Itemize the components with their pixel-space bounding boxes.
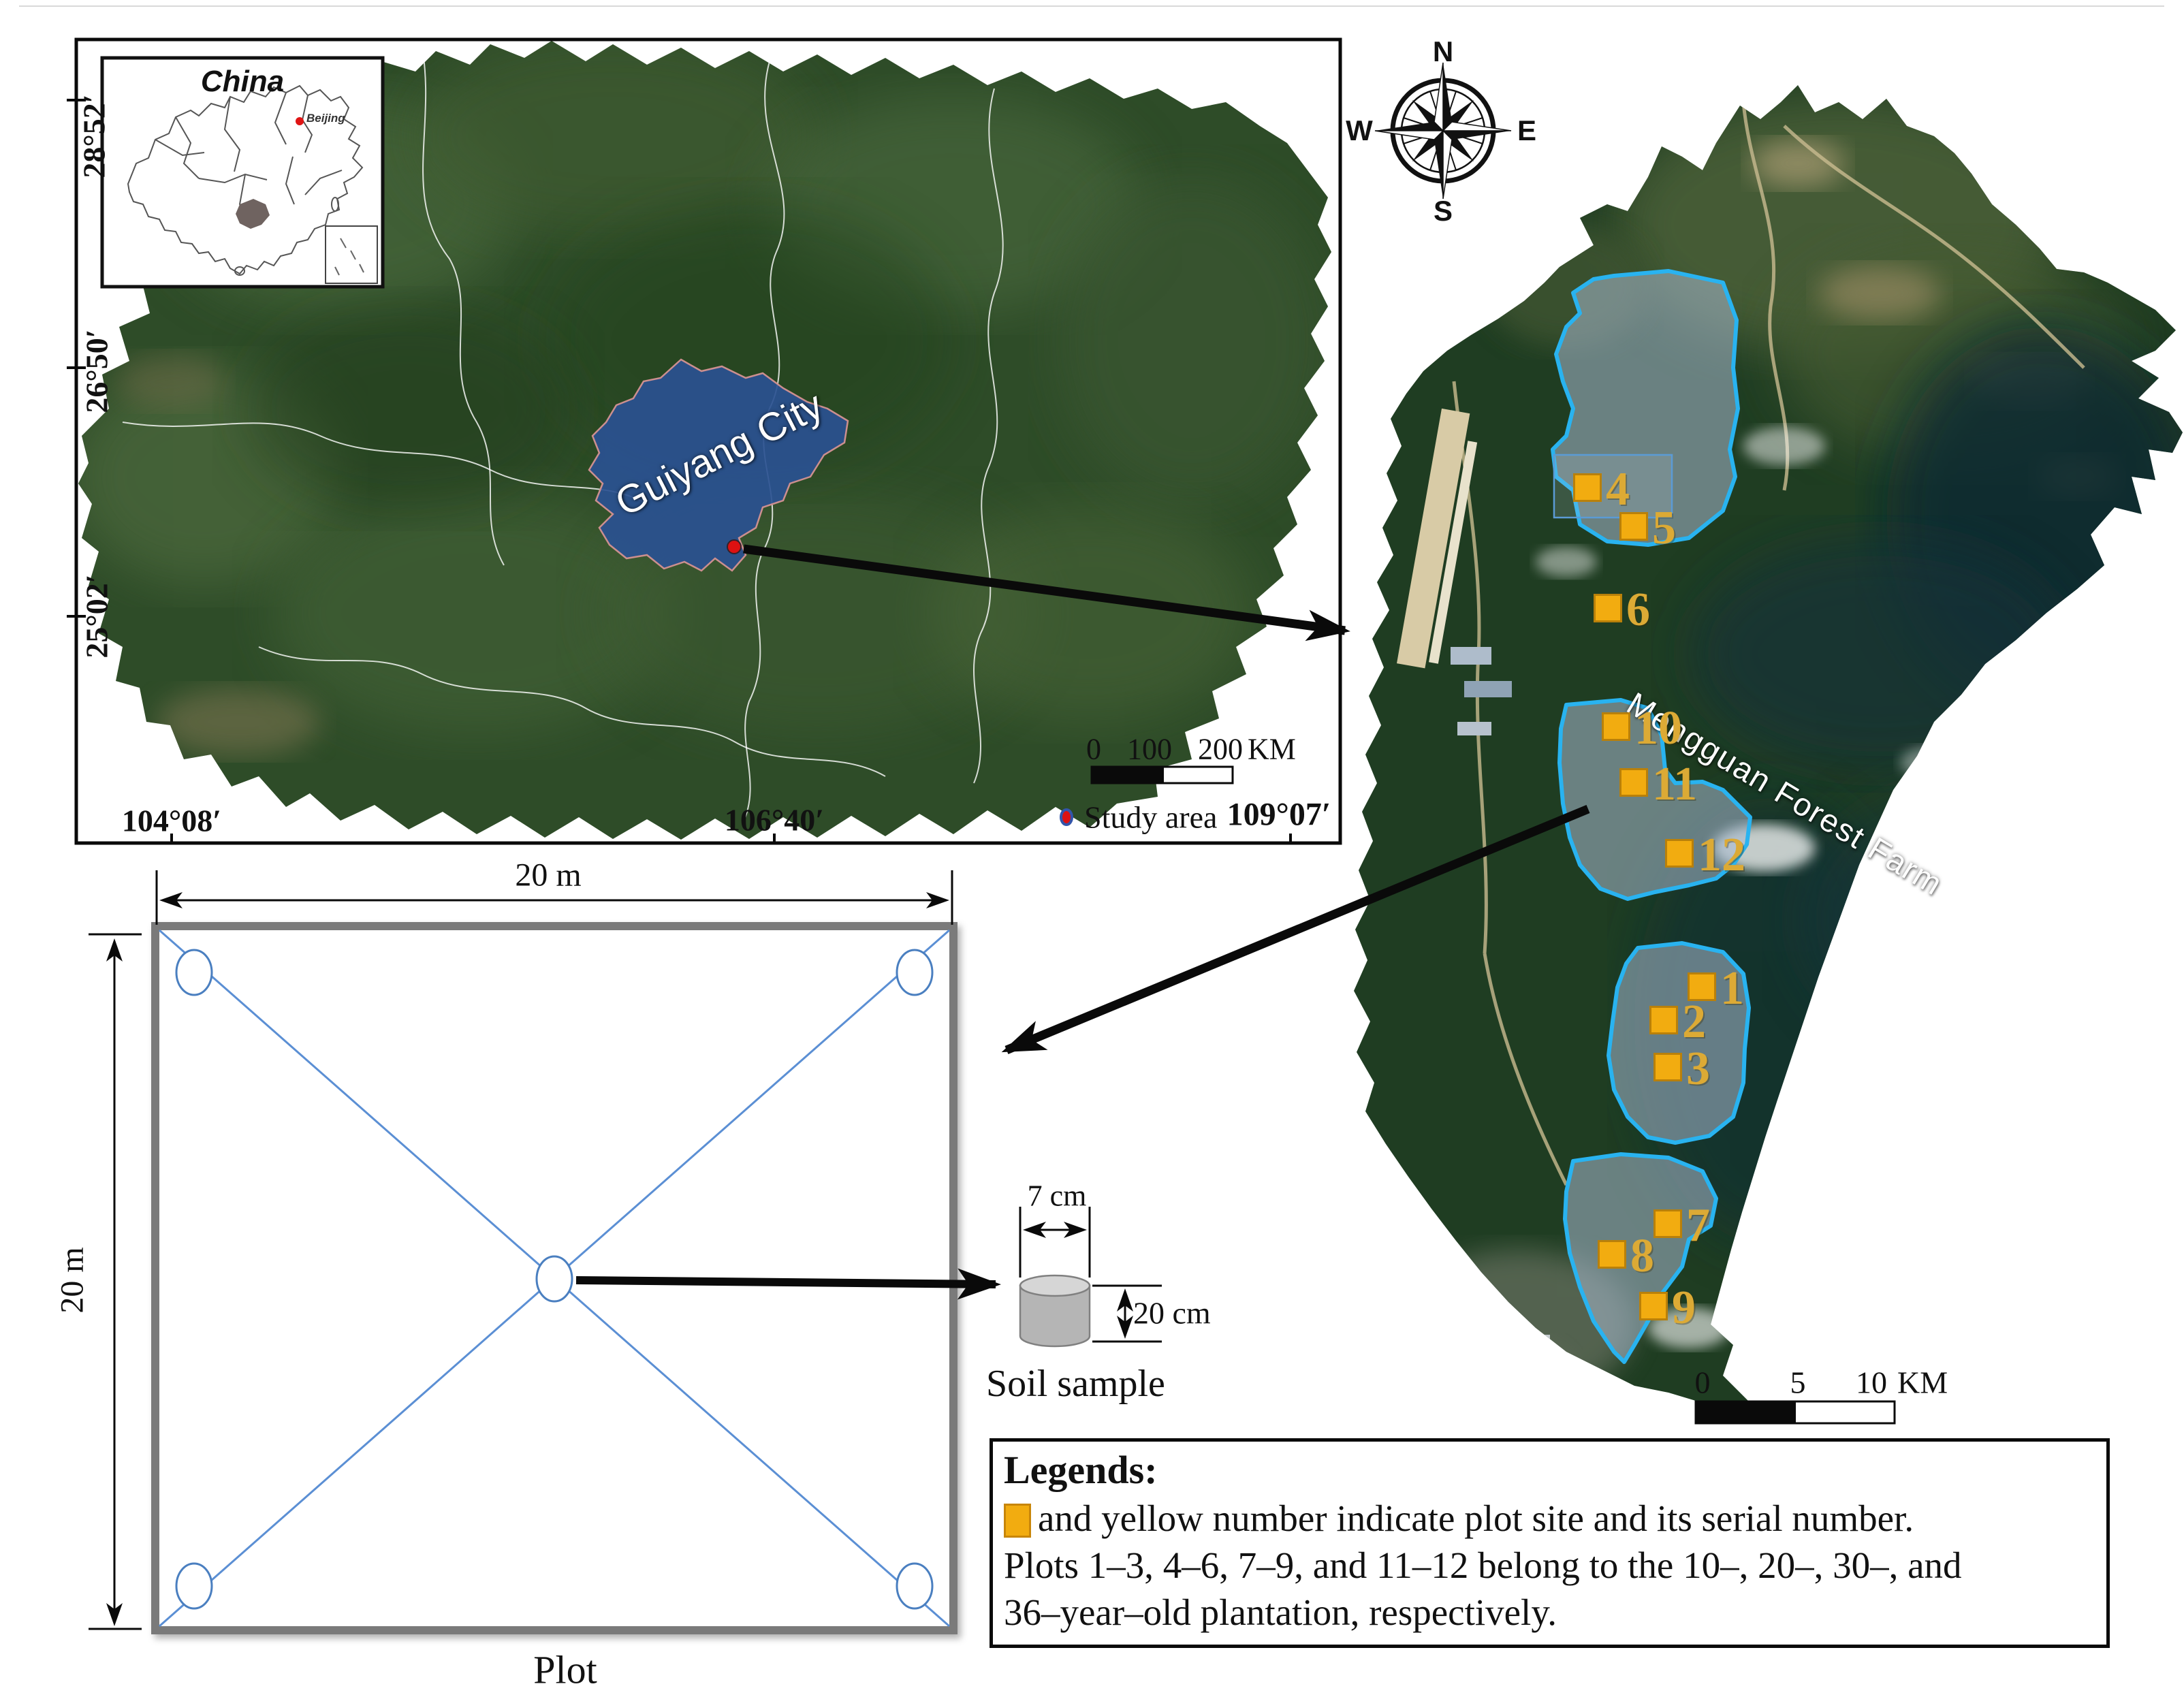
main-scale-unit: KM <box>1248 732 1296 767</box>
plot-square-icon <box>1619 768 1648 797</box>
plot-marker-9: 9 <box>1639 1292 1696 1325</box>
study-area-dot <box>727 540 741 554</box>
soil-depth-label: 20 cm <box>1133 1295 1211 1331</box>
main-scale-0: 0 <box>1086 732 1101 767</box>
arrow-plot-to-soil <box>576 1280 996 1284</box>
lon-label-106: 106°40′ <box>725 802 824 838</box>
compass-s-label: S <box>1434 195 1453 227</box>
legends-line-1-text: and yellow number indicate plot site and… <box>1038 1497 1914 1539</box>
main-scale-100: 100 <box>1127 732 1172 767</box>
plot-square-icon <box>1573 473 1602 502</box>
inset-title: China <box>201 65 284 99</box>
plot-number: 9 <box>1672 1292 1696 1325</box>
plot-marker-6: 6 <box>1594 594 1650 627</box>
legends-line-2: Plots 1–3, 4–6, 7–9, and 11–12 belong to… <box>1004 1542 2095 1589</box>
compass-w-label: W <box>1346 114 1373 147</box>
compass-n-label: N <box>1433 35 1453 68</box>
lat-label-26: 26°50′ <box>79 329 115 413</box>
main-scale-200: 200 <box>1198 732 1243 767</box>
plot-number: 11 <box>1652 768 1697 801</box>
legends-box: Legends: and yellow number indicate plot… <box>990 1438 2110 1648</box>
right-scale-5: 5 <box>1790 1365 1806 1401</box>
plot-number: 4 <box>1606 473 1630 506</box>
plot-marker-4: 4 <box>1573 473 1630 506</box>
plot-square-icon <box>1665 839 1694 868</box>
study-area-label: Study area <box>1084 799 1217 836</box>
plot-diagram <box>89 870 953 1630</box>
plot-square-legend-icon <box>1004 1504 1031 1538</box>
height-dimension <box>89 934 142 1629</box>
plot-square-icon <box>1653 1053 1682 1081</box>
soil-diameter-label: 7 cm <box>1028 1179 1087 1214</box>
plot-square-icon <box>1594 594 1622 622</box>
legends-line-3: 36–year–old plantation, respectively. <box>1004 1589 2095 1636</box>
plot-number: 12 <box>1698 839 1745 872</box>
plot-marker-7: 7 <box>1653 1209 1710 1242</box>
plot-marker-12: 12 <box>1665 839 1745 872</box>
lat-label-28: 28°52′ <box>76 94 112 178</box>
plot-square-icon <box>1653 1209 1682 1238</box>
plot-square-icon <box>1639 1292 1668 1320</box>
soil-cylinder <box>1020 1275 1090 1346</box>
plot-marker-3: 3 <box>1653 1053 1710 1085</box>
compass-e-label: E <box>1517 114 1536 147</box>
study-area-legend-dot <box>1061 810 1072 825</box>
soil-diameter-dimension <box>1020 1207 1090 1278</box>
plot-square-icon <box>1598 1240 1626 1269</box>
plot-number: 7 <box>1686 1209 1710 1242</box>
plot-width-label: 20 m <box>515 857 581 894</box>
figure: 28°52′ 26°50′ 25°02′ 104°08′ 106°40′ 109… <box>0 0 2184 1697</box>
legends-title: Legends: <box>1004 1446 2095 1495</box>
compass-rose-icon <box>1375 63 1511 199</box>
plot-marker-2: 2 <box>1649 1006 1706 1038</box>
plot-square-icon <box>1602 712 1630 741</box>
plot-number: 5 <box>1652 512 1676 545</box>
lon-label-104: 104°08′ <box>122 803 221 839</box>
main-scalebar <box>1092 767 1233 783</box>
right-scale-0: 0 <box>1695 1365 1711 1401</box>
plot-marker-8: 8 <box>1598 1240 1654 1273</box>
plot-square-icon <box>1619 512 1648 541</box>
beijing-dot <box>296 117 304 125</box>
sea-inset-box <box>326 226 377 283</box>
plot-marker-10: 10 <box>1602 712 1682 745</box>
lon-label-109: 109°07′ <box>1227 796 1331 834</box>
beijing-label: Beijing <box>306 112 345 125</box>
plot-number: 2 <box>1682 1006 1706 1038</box>
soil-caption: Soil sample <box>986 1362 1165 1406</box>
plot-height-label: 20 m <box>54 1247 91 1313</box>
plot-number: 6 <box>1626 594 1650 627</box>
plot-number: 1 <box>1720 972 1744 1005</box>
lat-label-25: 25°02′ <box>79 574 115 658</box>
legends-line-1: and yellow number indicate plot site and… <box>1004 1495 2095 1542</box>
plot-marker-11: 11 <box>1619 768 1697 801</box>
right-scale-unit: KM <box>1897 1365 1948 1401</box>
plot-marker-5: 5 <box>1619 512 1676 545</box>
right-scale-10: 10 <box>1856 1365 1887 1401</box>
right-scalebar <box>1696 1401 1895 1423</box>
plot-caption: Plot <box>533 1647 597 1693</box>
plot-square-icon <box>1649 1006 1678 1034</box>
mengguan-map <box>1354 85 2184 1423</box>
plot-number: 8 <box>1630 1240 1654 1273</box>
plot-number: 10 <box>1634 712 1682 745</box>
plot-number: 3 <box>1686 1053 1710 1085</box>
